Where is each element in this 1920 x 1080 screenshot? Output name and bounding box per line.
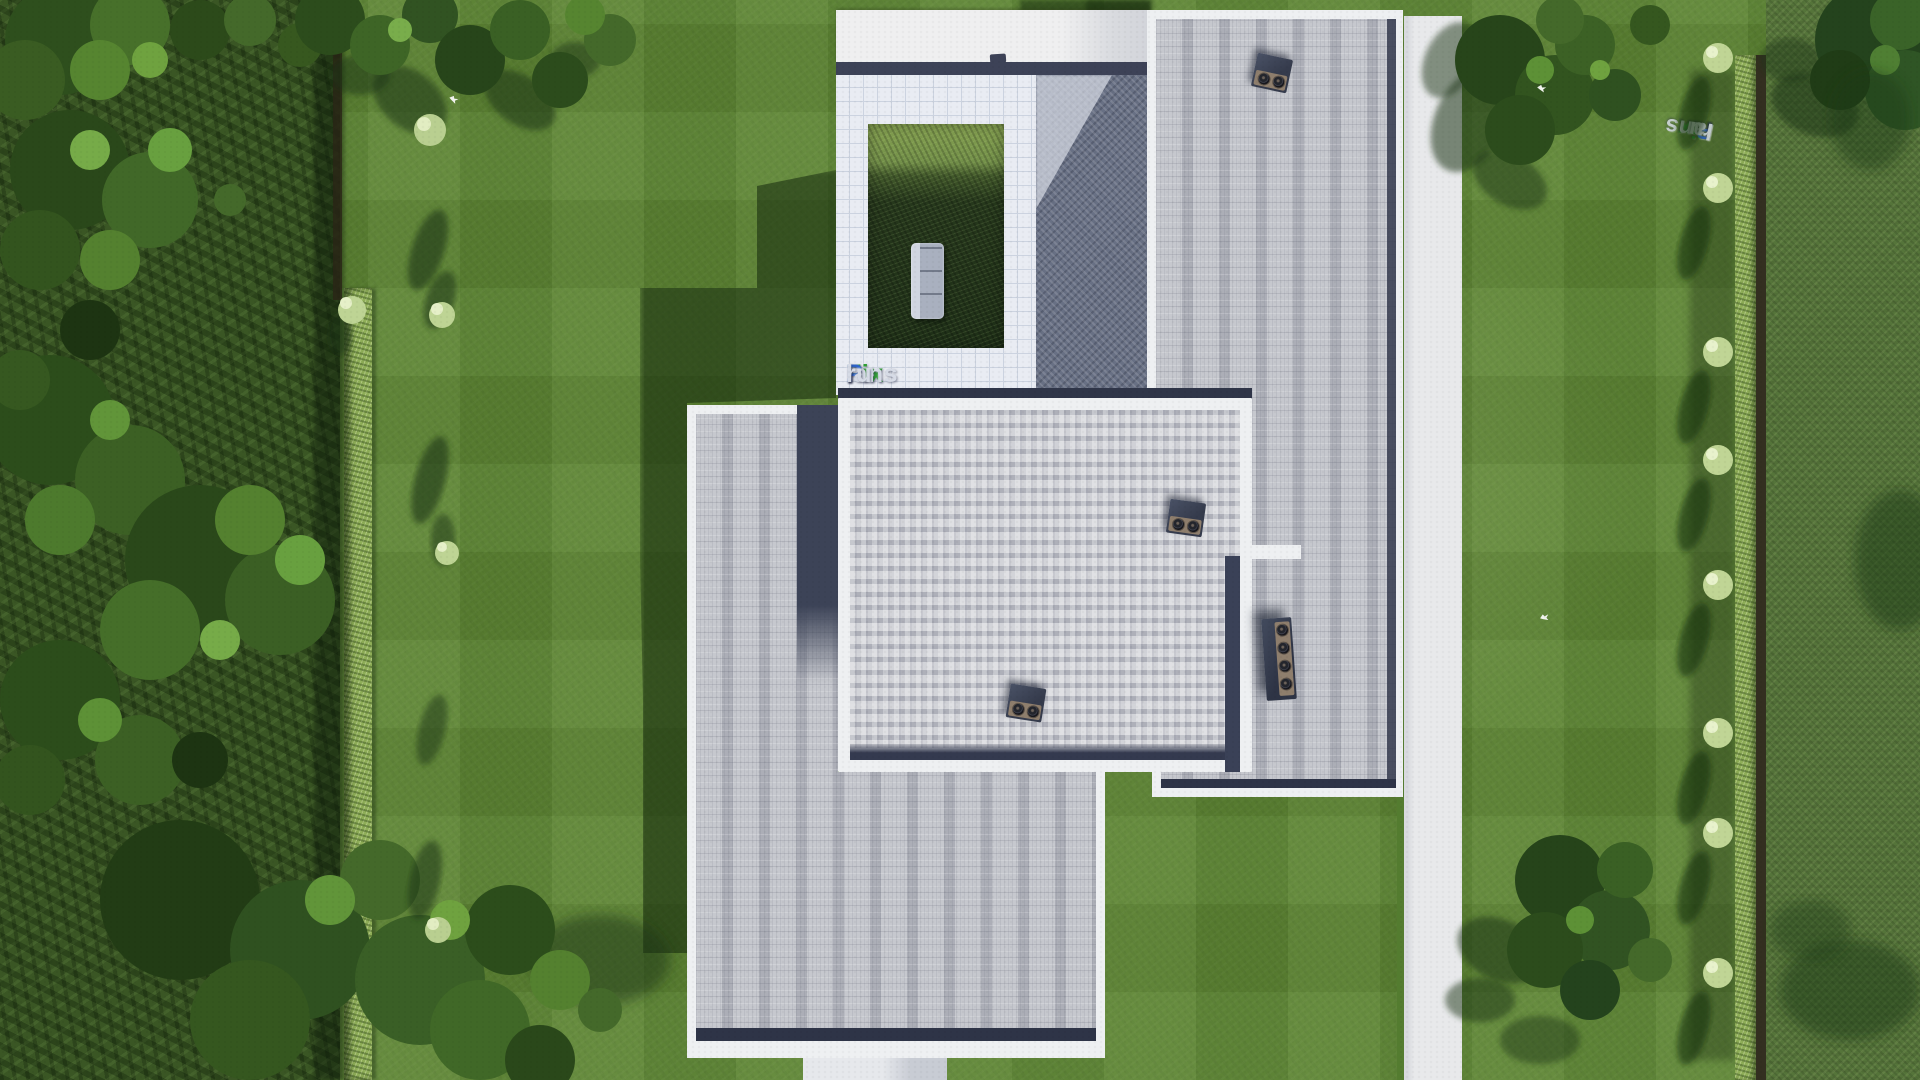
gray-paved-terrace xyxy=(1036,75,1147,395)
forest-strip-left xyxy=(0,0,340,1080)
courtyard-sofa xyxy=(911,243,944,319)
terrace-shadow-band xyxy=(836,62,1150,75)
ac-fan xyxy=(1186,519,1201,534)
ac-unit-center-roof-lower xyxy=(1006,683,1047,722)
left-hedge-row xyxy=(344,288,372,1080)
parapet-shadow-bump xyxy=(990,53,1007,63)
left-fence-line xyxy=(333,0,342,300)
right-hedge-row xyxy=(1735,55,1756,1080)
right-roof-fascia-shadow xyxy=(1387,19,1396,788)
left-roof-cast-shadow-band xyxy=(797,405,838,683)
overhang-trees-top xyxy=(295,0,636,148)
watermark-part: ru xyxy=(846,360,872,389)
roof-notch-ledge xyxy=(1243,545,1301,559)
aerial-house-render: FixPlans.ru FixPlans.ru xyxy=(0,0,1920,1080)
right-walkway xyxy=(1404,16,1462,1080)
white-bird xyxy=(1536,84,1546,92)
ac-fan xyxy=(1271,74,1286,89)
sofa-cushions xyxy=(920,246,942,316)
ac-unit-center-roof-upper xyxy=(1166,499,1206,538)
left-roof-eave-shadow xyxy=(696,1028,1096,1041)
ac-fan xyxy=(1278,659,1292,673)
outer-lawn-right xyxy=(1766,0,1920,1080)
sunlit-paving-wedge xyxy=(1036,75,1147,285)
center-roof-eave-shadow xyxy=(850,744,1240,760)
ac-fan xyxy=(1256,71,1271,86)
ac-fan xyxy=(1277,641,1291,655)
ac-fan xyxy=(1276,623,1290,637)
right-roof-eave-shadow xyxy=(1161,779,1396,788)
right-fence-line xyxy=(1756,55,1766,1080)
bottom-walkway xyxy=(803,1056,947,1080)
trees-bottom-right xyxy=(1445,835,1672,1064)
ac-unit-roof-right-top xyxy=(1251,53,1293,94)
ac-fan xyxy=(1011,702,1026,717)
ac-fan xyxy=(1279,677,1293,691)
white-bird xyxy=(1539,613,1550,622)
watermark-part: ru xyxy=(1686,116,1715,145)
white-bird xyxy=(448,95,459,105)
ac-fan xyxy=(1171,517,1186,532)
ac-unit-roof-right-mid xyxy=(1261,617,1297,701)
ac-fan xyxy=(1026,704,1041,719)
center-roof-side-shadow xyxy=(1225,556,1240,772)
right-hedge-shadow xyxy=(1690,70,1736,1060)
